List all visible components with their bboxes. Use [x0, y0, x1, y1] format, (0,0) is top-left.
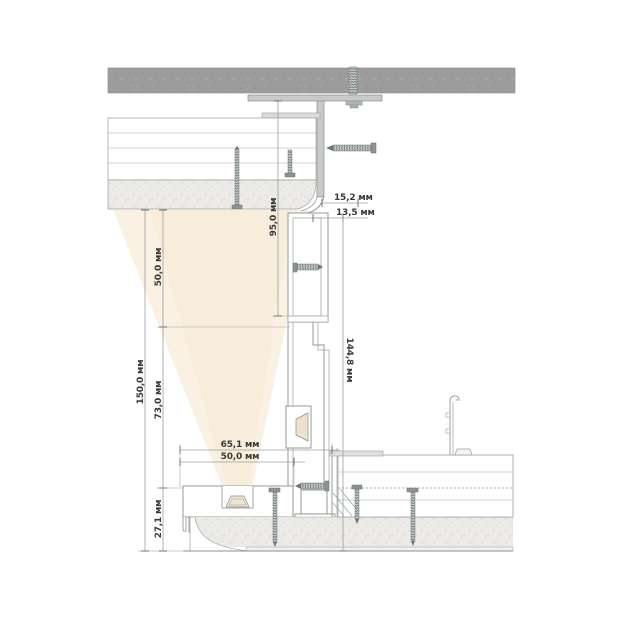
stem-right-wall-outer: [318, 322, 329, 486]
fixing-tab: [455, 449, 472, 455]
dimension-label: 50,0 мм: [154, 248, 164, 287]
dimension-label: 144,8 мм: [344, 338, 354, 383]
led-light-cone: [113, 210, 310, 497]
technical-drawing-page: 15,2 мм 13,5 мм 144,8 мм 95,0 мм 150,0: [0, 0, 630, 630]
stem-right-wall: [313, 322, 324, 486]
bracket-screw-icon: [333, 145, 371, 151]
plasterboard-layers: [108, 118, 316, 180]
plaster-finish-layer: [108, 180, 316, 209]
dimension-label: 15,2 мм: [334, 193, 373, 203]
dimension-label: 27,1 мм: [154, 500, 164, 539]
dimension-label: 50,0 мм: [221, 452, 260, 462]
edge-hook-prong: [183, 517, 186, 531]
screw-head: [352, 485, 362, 489]
panel-top-flange: [330, 451, 383, 456]
skim-coat-layer: [246, 547, 513, 551]
screw-head: [325, 481, 329, 491]
vertical-led-profile: [286, 213, 335, 521]
screw-tip: [326, 145, 333, 151]
screw-head: [407, 488, 418, 492]
anchor-nut: [350, 105, 358, 108]
slab-body: [108, 68, 515, 93]
clip-hook: [450, 396, 459, 455]
screw-head: [285, 173, 295, 177]
ceiling-screw-icon: [355, 489, 359, 519]
clip-notch: [446, 429, 450, 433]
lower-plasterboard-panel: [338, 455, 513, 517]
dimension-label: 73,0 мм: [154, 381, 164, 420]
anchor-washer: [346, 101, 362, 105]
screw-head: [269, 488, 280, 492]
section-drawing: 15,2 мм 13,5 мм 144,8 мм 95,0 мм 150,0: [0, 0, 630, 630]
edge-profile-top-lip: [262, 113, 320, 118]
clip-notch: [446, 413, 450, 417]
slab-anchor-icon: [349, 67, 357, 94]
ceiling-screw-icon: [411, 492, 415, 541]
lower-channel: [301, 490, 327, 514]
dimension-label: 95,0 мм: [269, 198, 279, 237]
ceiling-screw-icon: [273, 492, 277, 542]
dimension-label: 13,5 мм: [336, 208, 375, 218]
screw-head: [371, 143, 376, 153]
screw-head: [293, 263, 297, 272]
dimension-shadow-gap: 15,2 мм: [322, 193, 373, 207]
screw-tip: [295, 483, 301, 489]
profile-screw-icon: [301, 483, 325, 489]
dimension-label: 150,0 мм: [136, 360, 146, 405]
screw-head: [232, 205, 242, 209]
panel-screw-icon: [235, 149, 239, 205]
profile-box-bottom: [288, 316, 328, 322]
dimension-label: 65,1 мм: [221, 440, 260, 450]
panel-screw-icon: [288, 150, 292, 173]
suspension-clip: [446, 396, 459, 455]
bracket-top-flange: [248, 95, 382, 101]
profile-screw-icon: [297, 264, 318, 270]
lower-plaster-layer: [194, 517, 513, 547]
concrete-ceiling-slab: [108, 68, 515, 93]
